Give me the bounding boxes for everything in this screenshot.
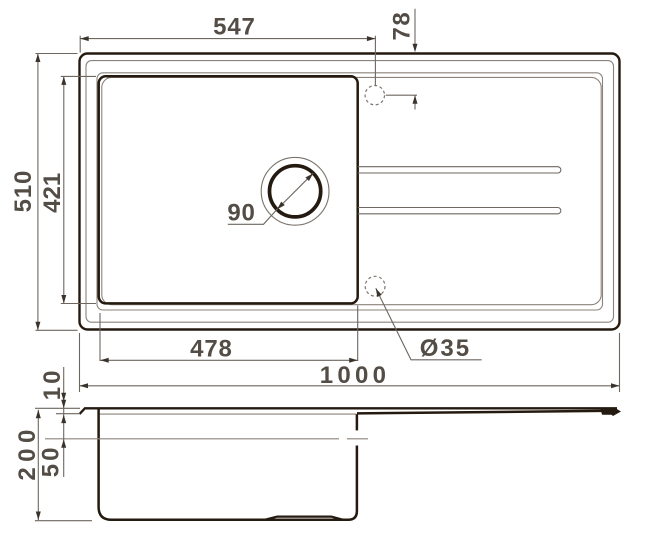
svg-text:10: 10 bbox=[39, 368, 66, 401]
svg-text:50: 50 bbox=[38, 445, 65, 478]
svg-text:90: 90 bbox=[227, 199, 255, 226]
svg-text:547: 547 bbox=[213, 14, 255, 41]
svg-text:510: 510 bbox=[10, 170, 37, 212]
svg-text:478: 478 bbox=[190, 335, 232, 362]
svg-text:Ø35: Ø35 bbox=[420, 335, 471, 362]
svg-text:421: 421 bbox=[39, 173, 66, 213]
svg-text:1000: 1000 bbox=[320, 362, 391, 389]
svg-text:78: 78 bbox=[389, 11, 416, 41]
